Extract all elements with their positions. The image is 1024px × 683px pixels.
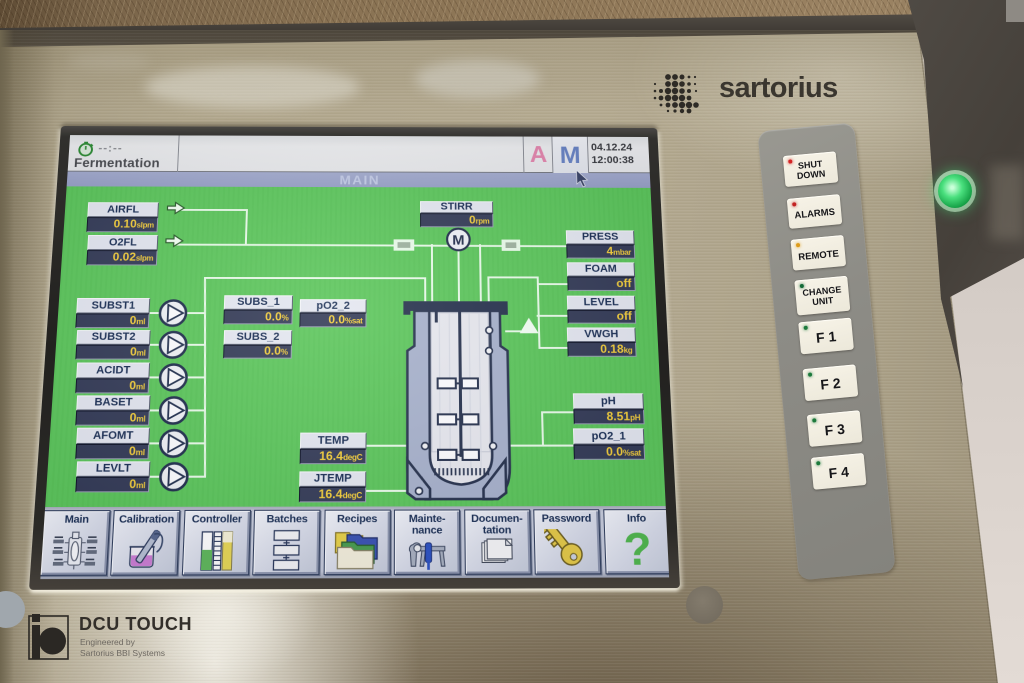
svg-text:?: ? [623, 529, 653, 571]
svg-text:M: M [452, 231, 464, 247]
